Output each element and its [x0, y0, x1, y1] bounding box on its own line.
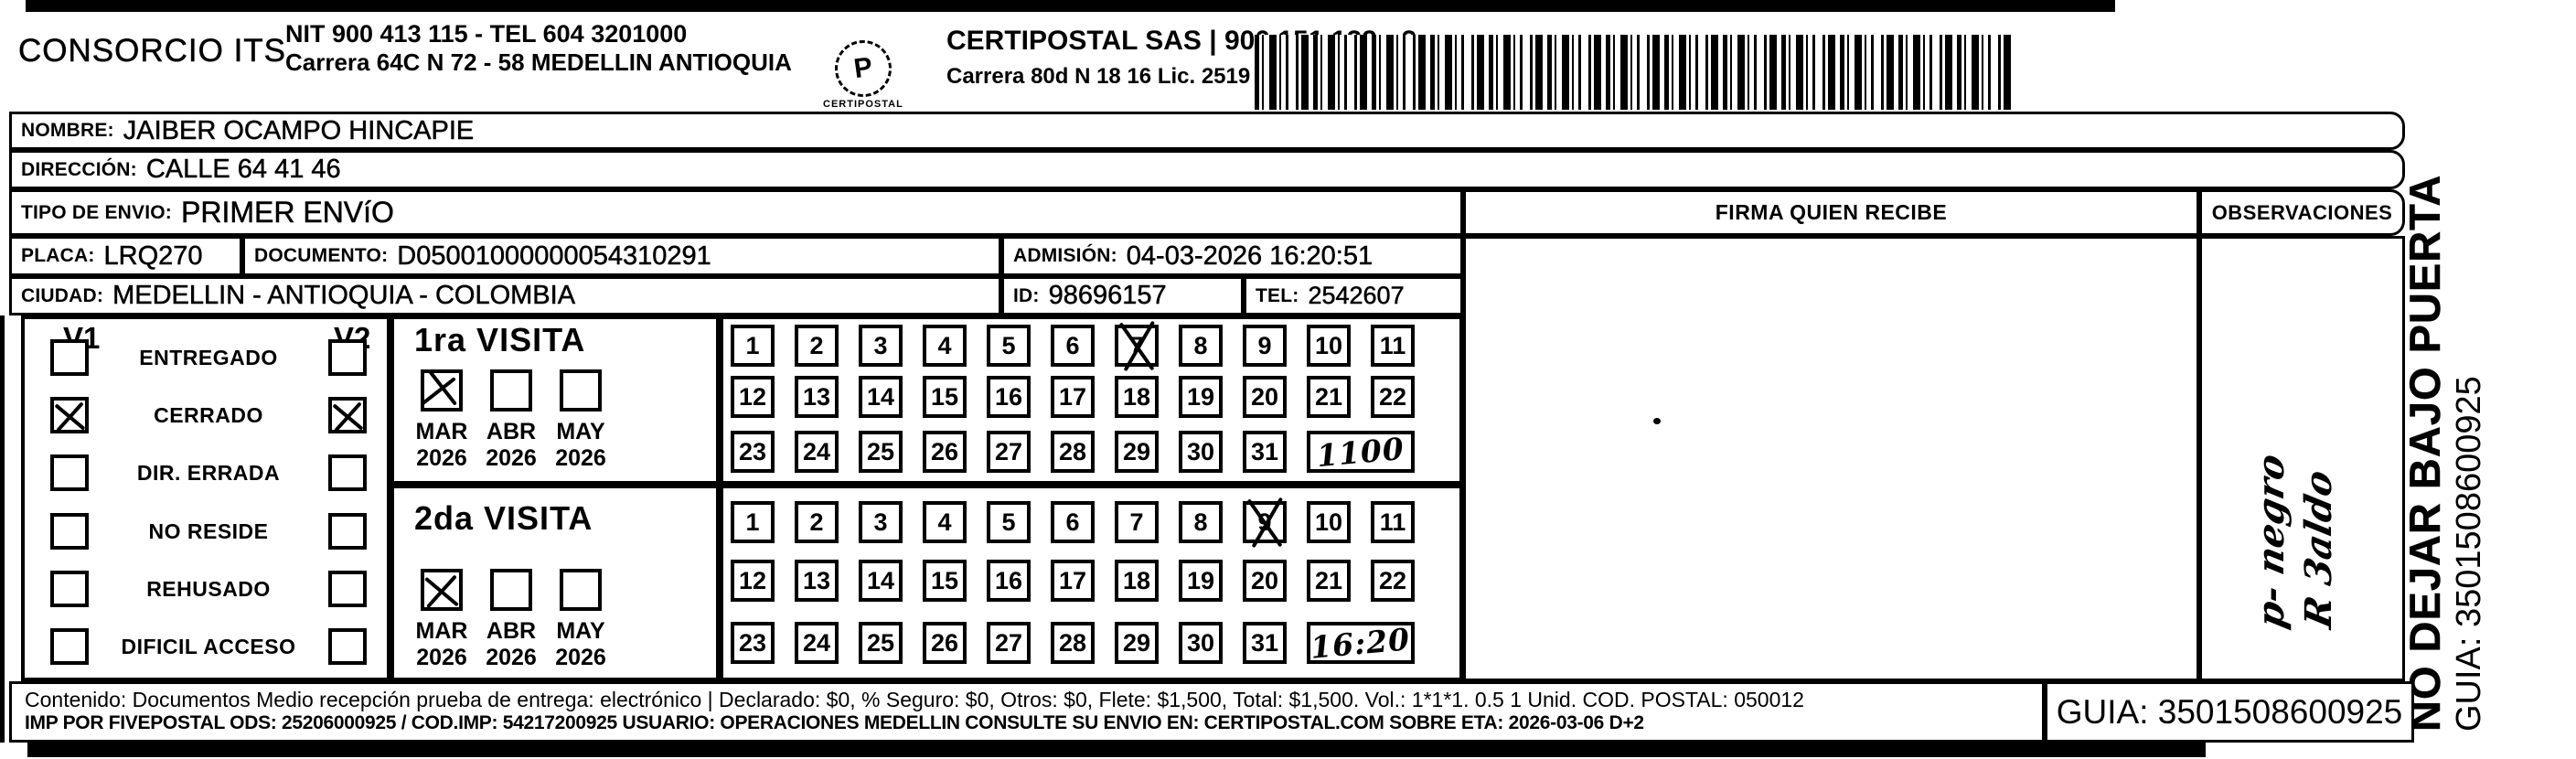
placa-label: PLACA: [21, 245, 95, 267]
handwritten-observation-line2: R 3aldo [2295, 238, 2343, 632]
status-panel: V1 V2 ENTREGADOCERRADODIR. ERRADANO RESI… [21, 315, 390, 681]
status-label-no-reside: NO RESIDE [89, 519, 328, 544]
direccion-label: DIRECCIÓN: [21, 159, 137, 181]
checkbox-month-may-visita-2[interactable] [560, 569, 602, 611]
cell-id: ID: 98696157 [1001, 276, 1244, 315]
footer-guia-cell: GUIA: 3501508600925 [2045, 681, 2414, 743]
cell-tel: TEL: 2542607 [1244, 276, 1463, 315]
status-row-dir-errada: DIR. ERRADA [25, 454, 387, 491]
tel-value: 2542607 [1308, 282, 1404, 310]
firma-column-header: FIRMA QUIEN RECIBE [1463, 189, 2199, 236]
footer-contenido-line: Contenido: Documentos Medio recepción pr… [25, 688, 2042, 712]
side-note-guia: GUIA: 3501508600925 [2450, 91, 2490, 732]
day-box-22-visita-2[interactable]: 22 [1371, 560, 1415, 602]
month-year-label: 2026 [555, 645, 606, 671]
day-box-5-visita-1[interactable]: 5 [987, 325, 1031, 367]
checkbox-v2-dir-errada[interactable] [328, 454, 367, 491]
id-label: ID: [1013, 285, 1040, 307]
month-label: MAR [416, 419, 468, 445]
scanned-delivery-form: CONSORCIO ITS NIT 900 413 115 - TEL 604 … [0, 0, 2576, 759]
tipo-envio-label: TIPO DE ENVIO: [21, 202, 172, 224]
day-box-27-visita-1[interactable]: 27 [987, 431, 1031, 473]
day-box-29-visita-2[interactable]: 29 [1115, 622, 1159, 664]
scan-artifact-left-edge [0, 315, 5, 743]
handwritten-time-box-visita-2[interactable]: 16:20 [1307, 622, 1415, 664]
day-box-31-visita-2[interactable]: 31 [1243, 622, 1287, 664]
status-row-dificil-acceso: DIFICIL ACCESO [25, 628, 387, 665]
status-label-dificil-acceso: DIFICIL ACCESO [89, 635, 328, 659]
visita-2-months: MAR2026ABR2026MAY2026 [407, 569, 615, 671]
day-box-7-visita-1[interactable]: 7 [1115, 325, 1159, 367]
day-box-20-visita-1[interactable]: 20 [1243, 376, 1287, 418]
day-box-13-visita-2[interactable]: 13 [795, 560, 839, 602]
checkbox-month-may-visita-1[interactable] [560, 369, 602, 412]
admision-label: ADMISIÓN: [1013, 245, 1117, 267]
day-box-7-visita-2[interactable]: 7 [1115, 501, 1159, 543]
documento-value: D05001000000054310291 [397, 241, 711, 272]
day-box-21-visita-1[interactable]: 21 [1307, 376, 1351, 418]
cell-ciudad: CIUDAD: MEDELLIN - ANTIOQUIA - COLOMBIA [9, 276, 1001, 315]
day-box-26-visita-1[interactable]: 26 [923, 431, 967, 473]
checkbox-month-abr-visita-1[interactable] [490, 369, 532, 412]
status-label-dir-errada: DIR. ERRADA [89, 461, 328, 486]
day-box-2-visita-2[interactable]: 2 [795, 501, 839, 543]
day-box-25-visita-1[interactable]: 25 [859, 431, 903, 473]
handwritten-observation-line1: p- negro [2248, 238, 2295, 632]
month-year-label: 2026 [416, 645, 467, 671]
day-box-24-visita-1[interactable]: 24 [795, 431, 839, 473]
day-box-30-visita-1[interactable]: 30 [1179, 431, 1223, 473]
admision-value: 04-03-2026 16:20:51 [1127, 241, 1373, 272]
month-year-label: 2026 [486, 645, 537, 671]
handwritten-cross-day-9 [1243, 501, 1287, 543]
observaciones-column-header: OBSERVACIONES [2199, 189, 2405, 236]
day-box-1-visita-2[interactable]: 1 [731, 501, 775, 543]
visita-1-panel: 1ra VISITA MAR2026ABR2026MAY2026 [390, 315, 720, 485]
certipostal-logo-text: CERTIPOSTAL [823, 99, 903, 110]
day-box-19-visita-2[interactable]: 19 [1179, 560, 1223, 602]
day-box-12-visita-1[interactable]: 12 [731, 376, 775, 418]
footer-imp-line: IMP POR FIVEPOSTAL ODS: 25206000925 / CO… [25, 712, 2042, 734]
month-label: MAY [556, 419, 604, 445]
checkbox-month-mar-visita-1[interactable] [421, 369, 463, 412]
checkbox-v1-no-reside[interactable] [50, 513, 89, 550]
day-box-10-visita-2[interactable]: 10 [1307, 501, 1351, 543]
day-box-26-visita-2[interactable]: 26 [923, 622, 967, 664]
day-box-17-visita-2[interactable]: 17 [1051, 560, 1095, 602]
status-label-entregado: ENTREGADO [89, 346, 328, 370]
day-box-1-visita-1[interactable]: 1 [731, 325, 775, 367]
scan-artifact-top-bar [26, 0, 2115, 12]
company-name: CONSORCIO ITS [18, 33, 286, 69]
month-may-visita-1: MAY2026 [546, 369, 615, 472]
day-box-28-visita-1[interactable]: 28 [1051, 431, 1095, 473]
checkbox-month-mar-visita-2[interactable] [421, 569, 463, 611]
month-mar-visita-2: MAR2026 [407, 569, 476, 671]
status-row-rehusado: REHUSADO [25, 571, 387, 607]
company-address-line: Carrera 64C N 72 - 58 MEDELLIN ANTIOQUIA [285, 48, 792, 77]
month-year-label: 2026 [416, 445, 467, 472]
checkbox-v1-entregado[interactable] [50, 339, 89, 376]
handwritten-time-visita-1: 1100 [1316, 430, 1406, 473]
checkbox-v2-no-reside[interactable] [328, 513, 367, 550]
checkbox-v1-rehusado[interactable] [50, 571, 89, 607]
placa-value: LRQ270 [104, 241, 203, 272]
day-box-5-visita-2[interactable]: 5 [987, 501, 1031, 543]
firma-signature-area[interactable] [1463, 236, 2199, 681]
month-year-label: 2026 [555, 445, 606, 472]
day-box-21-visita-2[interactable]: 21 [1307, 560, 1351, 602]
day-box-11-visita-2[interactable]: 11 [1371, 501, 1415, 543]
scan-artifact-bottom-bar [27, 743, 2206, 757]
visita-1-months: MAR2026ABR2026MAY2026 [407, 369, 615, 472]
visita-1-day-grid: 1234567891011 1213141516171819202122 232… [720, 315, 1463, 485]
status-label-cerrado: CERRADO [89, 403, 328, 428]
day-box-3-visita-2[interactable]: 3 [859, 501, 903, 543]
status-row-no-reside: NO RESIDE [25, 513, 387, 550]
ciudad-value: MEDELLIN - ANTIOQUIA - COLOMBIA [112, 281, 575, 311]
tipo-envio-value: PRIMER ENVíO [181, 196, 394, 230]
day-box-10-visita-1[interactable]: 10 [1307, 325, 1351, 367]
day-box-4-visita-2[interactable]: 4 [923, 501, 967, 543]
row-nombre: NOMBRE: JAIBER OCAMPO HINCAPIE [9, 112, 2405, 150]
barcode [1255, 35, 2014, 110]
day-box-17-visita-1[interactable]: 17 [1051, 376, 1095, 418]
day-box-23-visita-1[interactable]: 23 [731, 431, 775, 473]
day-box-18-visita-1[interactable]: 18 [1115, 376, 1159, 418]
day-box-23-visita-2[interactable]: 23 [731, 622, 775, 664]
checkbox-v1-dificil-acceso[interactable] [50, 628, 89, 665]
checkbox-v2-rehusado[interactable] [328, 571, 367, 607]
day-box-15-visita-1[interactable]: 15 [923, 376, 967, 418]
day-box-16-visita-2[interactable]: 16 [987, 560, 1031, 602]
side-note-no-dejar: NO DEJAR BAJO PUERTA [2400, 91, 2450, 732]
cell-placa: PLACA: LRQ270 [9, 236, 242, 276]
day-box-11-visita-1[interactable]: 11 [1371, 325, 1415, 367]
visita-2-title: 2da VISITA [414, 499, 593, 538]
day-box-30-visita-2[interactable]: 30 [1179, 622, 1223, 664]
visita-1-title: 1ra VISITA [414, 321, 585, 359]
day-box-9-visita-2[interactable]: 9 [1243, 501, 1287, 543]
day-box-19-visita-1[interactable]: 19 [1179, 376, 1223, 418]
certipostal-logo: P CERTIPOSTAL [823, 40, 903, 115]
cell-documento: DOCUMENTO: D05001000000054310291 [242, 236, 1001, 276]
row-direccion: DIRECCIÓN: CALLE 64 41 46 [9, 150, 2405, 189]
day-box-18-visita-2[interactable]: 18 [1115, 560, 1159, 602]
day-box-6-visita-2[interactable]: 6 [1051, 501, 1095, 543]
day-box-15-visita-2[interactable]: 15 [923, 560, 967, 602]
scan-artifact-dot [1653, 418, 1661, 424]
observaciones-area: p- negro R 3aldo [2199, 236, 2405, 681]
day-box-24-visita-2[interactable]: 24 [795, 622, 839, 664]
day-box-12-visita-2[interactable]: 12 [731, 560, 775, 602]
status-row-cerrado: CERRADO [25, 397, 387, 433]
documento-label: DOCUMENTO: [254, 245, 388, 267]
day-box-3-visita-1[interactable]: 3 [859, 325, 903, 367]
day-box-9-visita-1[interactable]: 9 [1243, 325, 1287, 367]
checkbox-v1-cerrado[interactable] [50, 397, 89, 433]
day-box-8-visita-1[interactable]: 8 [1179, 325, 1223, 367]
visita-2-day-grid: 1234567891011 1213141516171819202122 232… [720, 485, 1463, 681]
footer-info-cell: Contenido: Documentos Medio recepción pr… [9, 681, 2045, 743]
month-label: MAR [416, 618, 468, 645]
month-abr-visita-1: ABR2026 [476, 369, 546, 472]
handwritten-cross-day-7 [1115, 325, 1159, 367]
row-tipo-envio: TIPO DE ENVIO: PRIMER ENVíO [9, 189, 1463, 236]
checkbox-v1-dir-errada[interactable] [50, 454, 89, 491]
status-label-rehusado: REHUSADO [89, 577, 328, 602]
day-box-22-visita-1[interactable]: 22 [1371, 376, 1415, 418]
cell-admision: ADMISIÓN: 04-03-2026 16:20:51 [1001, 236, 1463, 276]
day-box-16-visita-1[interactable]: 16 [987, 376, 1031, 418]
day-box-8-visita-2[interactable]: 8 [1179, 501, 1223, 543]
direccion-value: CALLE 64 41 46 [146, 155, 341, 185]
month-mar-visita-1: MAR2026 [407, 369, 476, 472]
company-nit-line: NIT 900 413 115 - TEL 604 3201000 [285, 20, 792, 48]
day-box-27-visita-2[interactable]: 27 [987, 622, 1031, 664]
tel-label: TEL: [1256, 285, 1299, 307]
handwritten-time-box-visita-1[interactable]: 1100 [1307, 431, 1415, 473]
handwritten-time-visita-2: 16:20 [1309, 621, 1412, 665]
visita-2-panel: 2da VISITA MAR2026ABR2026MAY2026 [390, 485, 720, 681]
day-box-29-visita-1[interactable]: 29 [1115, 431, 1159, 473]
month-abr-visita-2: ABR2026 [476, 569, 546, 671]
month-label: MAY [556, 618, 604, 645]
day-box-28-visita-2[interactable]: 28 [1051, 622, 1095, 664]
certipostal-logo-icon: P [831, 37, 895, 101]
day-box-13-visita-1[interactable]: 13 [795, 376, 839, 418]
checkbox-month-abr-visita-2[interactable] [490, 569, 532, 611]
nombre-label: NOMBRE: [21, 120, 114, 142]
day-box-25-visita-2[interactable]: 25 [859, 622, 903, 664]
month-may-visita-2: MAY2026 [546, 569, 615, 671]
checkbox-v2-entregado[interactable] [328, 339, 367, 376]
day-box-20-visita-2[interactable]: 20 [1243, 560, 1287, 602]
id-value: 98696157 [1049, 281, 1167, 311]
day-box-4-visita-1[interactable]: 4 [923, 325, 967, 367]
checkbox-v2-cerrado[interactable] [328, 397, 367, 433]
company-contact-block: NIT 900 413 115 - TEL 604 3201000 Carrer… [285, 20, 792, 77]
ciudad-label: CIUDAD: [21, 285, 103, 307]
month-label: ABR [486, 419, 536, 445]
day-box-31-visita-1[interactable]: 31 [1243, 431, 1287, 473]
day-box-14-visita-1[interactable]: 14 [859, 376, 903, 418]
day-box-14-visita-2[interactable]: 14 [859, 560, 903, 602]
month-label: ABR [486, 618, 536, 645]
nombre-value: JAIBER OCAMPO HINCAPIE [123, 116, 475, 146]
side-rotated-note: NO DEJAR BAJO PUERTA GUIA: 3501508600925 [2400, 91, 2547, 732]
day-box-2-visita-1[interactable]: 2 [795, 325, 839, 367]
month-year-label: 2026 [486, 445, 537, 472]
day-box-6-visita-1[interactable]: 6 [1051, 325, 1095, 367]
checkbox-v2-dificil-acceso[interactable] [328, 628, 367, 665]
status-row-entregado: ENTREGADO [25, 339, 387, 376]
handwritten-observation: p- negro R 3aldo [2248, 243, 2357, 627]
